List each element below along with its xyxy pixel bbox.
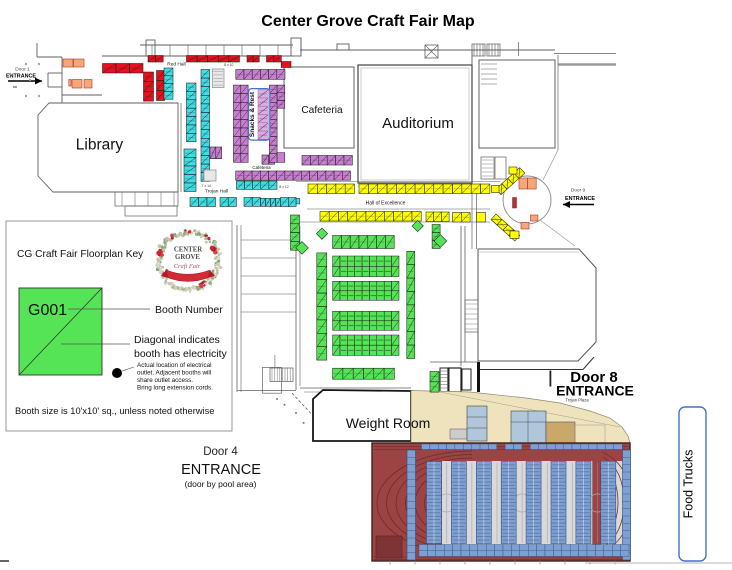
svg-text:CG Craft Fair Floorplan Key: CG Craft Fair Floorplan Key: [17, 249, 144, 260]
svg-text:(door by pool area): (door by pool area): [185, 479, 257, 489]
svg-text:Auditorium: Auditorium: [382, 115, 454, 132]
svg-text:outlet. Adjacent booths will: outlet. Adjacent booths will: [137, 370, 211, 377]
svg-text:Red Hall: Red Hall: [167, 62, 185, 68]
svg-text:Booth size is 10'x10' sq., unl: Booth size is 10'x10' sq., unless noted …: [15, 406, 214, 416]
svg-text:ENTRANCE: ENTRANCE: [565, 196, 595, 202]
svg-text:ENTRANCE: ENTRANCE: [556, 383, 634, 399]
svg-text:Weight Room: Weight Room: [346, 415, 431, 431]
svg-text:Diagonal indicates: Diagonal indicates: [134, 334, 220, 346]
svg-text:Craft Fair: Craft Fair: [174, 263, 201, 270]
svg-text:Bring long extension cords.: Bring long extension cords.: [137, 385, 213, 392]
svg-text:Food Trucks: Food Trucks: [682, 450, 696, 519]
svg-text:8 x 12: 8 x 12: [279, 185, 288, 189]
svg-text:8 x 10: 8 x 10: [224, 63, 233, 67]
svg-text:Door 1: Door 1: [15, 67, 30, 73]
svg-text:G001: G001: [28, 302, 67, 319]
svg-text:Booth Number: Booth Number: [155, 304, 223, 316]
svg-text:booth has electricity: booth has electricity: [134, 348, 228, 360]
svg-text:Hall of Excellence: Hall of Excellence: [366, 201, 406, 207]
svg-text:Cafeteria: Cafeteria: [252, 165, 271, 170]
svg-text:Door 4: Door 4: [203, 446, 238, 458]
svg-text:Center Grove Craft Fair Map: Center Grove Craft Fair Map: [261, 13, 475, 30]
svg-text:CENTER: CENTER: [174, 247, 202, 254]
svg-text:Trojan Hall: Trojan Hall: [205, 189, 228, 195]
svg-text:Cafeteria: Cafeteria: [301, 105, 343, 116]
svg-text:GROVE: GROVE: [175, 254, 200, 261]
svg-text:Snacks & Rest: Snacks & Rest: [249, 91, 256, 137]
svg-text:share outlet access.: share outlet access.: [137, 377, 193, 384]
svg-text:7 x 14: 7 x 14: [202, 184, 211, 188]
svg-text:Library: Library: [76, 137, 124, 154]
svg-text:Trojan Plaza: Trojan Plaza: [565, 398, 589, 403]
svg-text:Door 9: Door 9: [571, 188, 586, 194]
svg-text:Actual location of electrical: Actual location of electrical: [137, 362, 212, 369]
svg-text:ENTRANCE: ENTRANCE: [181, 462, 261, 478]
